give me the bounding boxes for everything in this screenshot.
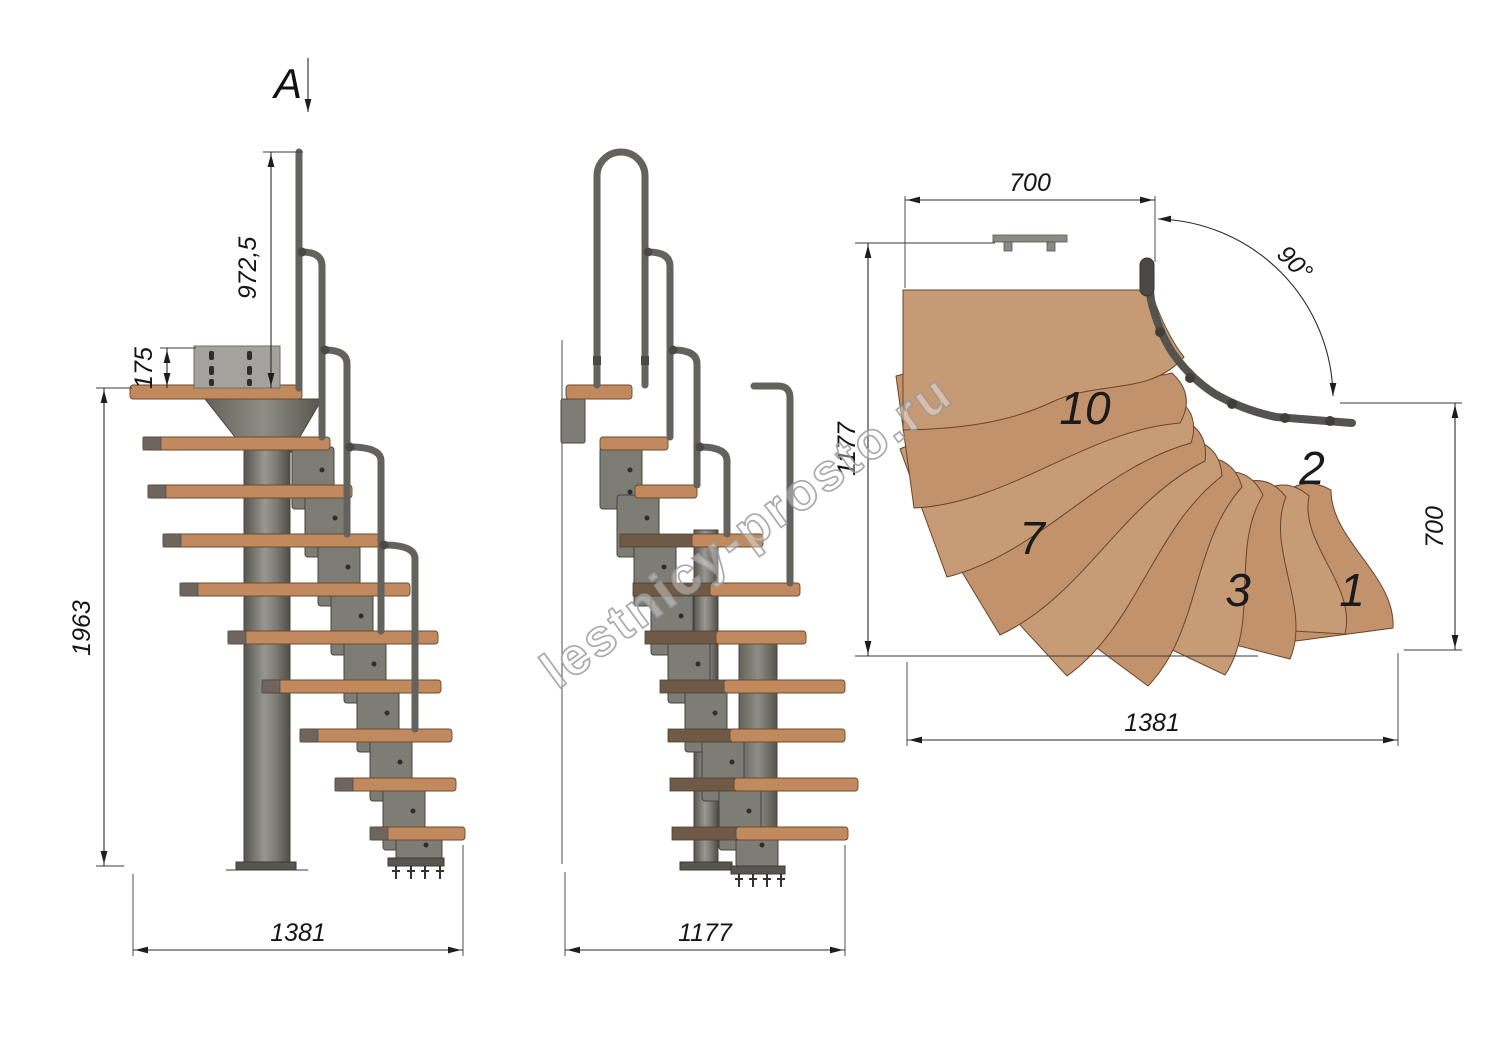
section-arrow-icon [305,99,312,112]
dim-text-side-length: 1381 [270,919,326,947]
column-base-plate [236,862,296,870]
center-column [244,450,290,864]
dim-arrow [865,245,872,258]
tread-back-edge [672,827,738,840]
step-number-7: 7 [1019,512,1046,564]
dim-arrow [865,641,872,654]
rail-joint [696,443,705,452]
dim-plate-height: 175 [130,347,196,389]
tread [143,437,330,450]
tread-bracket [335,778,353,791]
wall-bracket-plan [993,235,1067,251]
rail-joint [669,346,678,355]
rail-joint [1325,416,1335,426]
dim-arrow [268,154,275,167]
dim-text-plan-length: 1381 [1124,709,1180,737]
anchor-bolts [392,866,444,879]
dim-arrow [101,851,108,864]
step-number-3: 3 [1225,564,1251,616]
tread [300,729,452,742]
tread [180,583,410,596]
rail-joint [321,346,330,355]
dim-arrow [1158,216,1171,223]
dim-total-height: 1963 [68,388,132,866]
rail-joint [1227,399,1237,409]
dim-text-plan-right-width: 700 [1421,506,1449,548]
tread-back-edge [670,778,736,791]
dim-arrow [1140,197,1153,204]
dim-arrow [907,197,920,204]
dim-text-plate-height: 175 [130,347,158,389]
tread-bracket [300,729,318,742]
dim-arrow [101,390,108,403]
rail-collar [593,356,601,365]
rail-joint [346,443,355,452]
tread-bracket [163,534,181,547]
wall-mount-plate [194,346,280,388]
section-mark: A [271,58,311,112]
step-number-1: 1 [1339,564,1365,616]
tread [716,631,806,644]
tread [724,680,845,693]
tread [635,485,697,498]
tread-bracket [228,631,246,644]
step-number-10: 10 [1059,382,1111,434]
rail-joint [1155,327,1165,337]
dim-arrow [448,947,461,954]
tread-bracket [370,827,388,840]
tread [730,729,845,742]
section-label: A [271,60,302,107]
dim-arrow [830,947,843,954]
dim-arrow [1383,737,1396,744]
rail-loop-top [1140,258,1154,296]
dim-text-turn-angle: 90° [1271,240,1318,287]
dim-text-plan-top-width: 700 [1009,169,1051,197]
tread-bracket [148,485,166,498]
rail-joint [380,541,389,550]
handrail-segment [673,350,697,485]
dim-text-front-width: 1177 [678,919,733,947]
rail-joint [644,248,653,257]
dim-text-total-height: 1963 [68,600,96,656]
tread-bracket [262,680,280,693]
tread [736,827,848,840]
rail-joint [1185,373,1195,383]
column-base-plate [680,862,732,870]
wall-bracket [561,399,585,443]
dim-arrow [164,350,171,363]
dim-arrow [1452,405,1459,418]
staircase-technical-drawing: A 972,5 175 1963 [0,0,1500,1061]
dim-text-handrail-height: 972,5 [234,237,262,300]
tread-back-edge [668,729,732,742]
tread-bracket [143,437,161,450]
anchor-flange [731,866,785,874]
step-number-2: 2 [1298,442,1325,494]
rail-collar [641,356,649,365]
dim-arrow [1330,383,1337,396]
support-modules [292,447,442,863]
dim-plan-top-width: 700 [905,169,1155,288]
tread [600,437,668,450]
handrail-loop [597,152,645,385]
tread-back-edge [660,680,726,693]
dim-arrow [1452,635,1459,648]
dim-arrow [135,947,148,954]
drawing-page: A 972,5 175 1963 [0,0,1500,1061]
handrail-segment [648,252,670,437]
tread [710,583,800,596]
dim-arrow [909,737,922,744]
dim-arrow [567,947,580,954]
tread-bracket [180,583,198,596]
plan-view: 10 7 3 2 1 700 90° 1177 [833,169,1462,746]
rail-joint [298,248,307,257]
anchor-flange [388,858,444,866]
tread [228,631,438,644]
anchor-bolts [735,874,785,887]
side-elevation-view: A 972,5 175 1963 [68,58,465,956]
dim-arrow [164,373,171,386]
rail-joint [1280,413,1290,423]
tread [734,778,858,791]
tread [148,485,352,498]
